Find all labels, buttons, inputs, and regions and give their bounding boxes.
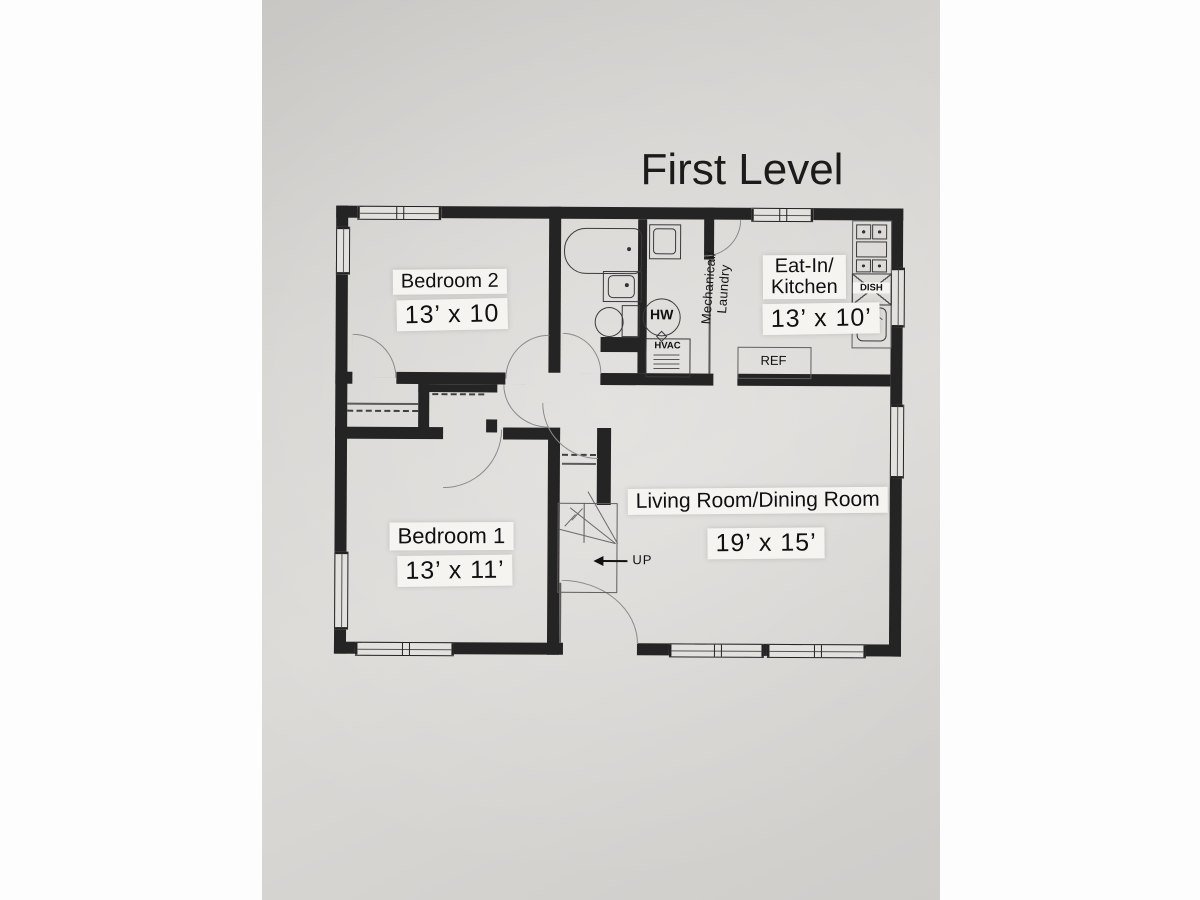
kitchen-label-line2: Kitchen — [771, 277, 838, 298]
wall-bedroom2-bath — [548, 207, 561, 373]
wall-bedroom2-bottom-a — [335, 372, 352, 384]
room-label-living: Living Room/Dining Room — [628, 487, 888, 515]
room-label-mechanical: Mechanical/ Laundry — [696, 228, 739, 350]
hvac-label: HVAC — [647, 340, 689, 351]
door-arc-bathroom — [562, 333, 601, 374]
room-size-bedroom1: 13’ x 11’ — [397, 555, 513, 587]
refrigerator-label: REF — [750, 353, 796, 368]
window-bedroom1-bottom — [355, 642, 454, 657]
door-arc-bedroom2-right — [505, 335, 549, 379]
door-arc-bedroom1 — [443, 429, 502, 488]
door-arc-bedroom2-left — [352, 334, 396, 378]
wall-toilet-stub — [601, 337, 641, 352]
window-kitchen-top — [751, 208, 813, 222]
closet-shelf-line — [347, 403, 418, 405]
water-heater-label: HW — [644, 306, 680, 322]
stove-burner-icon — [872, 259, 887, 272]
room-label-bedroom2: Bedroom 2 — [393, 269, 507, 295]
window-bedroom2-left — [336, 227, 350, 275]
room-size-living: 19’ x 15’ — [707, 527, 824, 559]
room-size-bedroom2: 13’ x 10 — [396, 298, 507, 331]
kitchen-label-line1: Eat-In/ — [771, 256, 838, 277]
closet-rod-bedroom1 — [347, 410, 418, 412]
oven — [856, 241, 887, 257]
wall-bedroom2-bottom-b — [396, 372, 505, 385]
up-arrow-line — [602, 560, 627, 562]
window-kitchen-right — [891, 268, 905, 328]
room-label-bedroom1: Bedroom 1 — [389, 522, 513, 550]
closet-shelf-linen — [562, 463, 596, 465]
up-arrow-head-icon — [593, 556, 603, 566]
window-bedroom2-top — [357, 206, 441, 220]
bath-sink-faucet-icon — [625, 283, 629, 287]
bathtub-faucet-icon — [627, 247, 631, 251]
hvac-grille-icon — [653, 354, 679, 370]
bath-sink-basin — [608, 275, 635, 298]
room-size-kitchen: 13’ x 10’ — [762, 302, 880, 335]
staircase — [557, 503, 617, 593]
window-living-bottom-2 — [767, 644, 866, 659]
window-living-bottom-1 — [669, 643, 764, 657]
bathtub — [564, 228, 642, 274]
closet-rod-hall — [432, 393, 484, 395]
window-bedroom1-left — [334, 552, 348, 630]
toilet-bowl — [595, 307, 624, 337]
stairs-up-label: UP — [632, 552, 652, 567]
washer-tub — [653, 228, 676, 254]
floor-plan-photo: First Level — [262, 0, 940, 900]
stove-burner-icon — [856, 259, 871, 272]
window-living-right — [890, 405, 904, 479]
room-label-kitchen: Eat-In/ Kitchen — [763, 255, 846, 299]
wall-living-left — [597, 428, 611, 505]
page-background: First Level — [0, 0, 1200, 900]
toilet-tank — [622, 305, 640, 337]
wall-hall-closet-top — [418, 384, 497, 392]
stove-burner-icon — [856, 224, 871, 239]
stove-burner-icon — [872, 224, 887, 239]
floor-plan: HW HVAC Mechanical/ Laundry DISH REF — [0, 0, 1200, 900]
wall-hall-closet-left — [418, 384, 429, 432]
dishwasher-label: DISH — [853, 282, 890, 293]
